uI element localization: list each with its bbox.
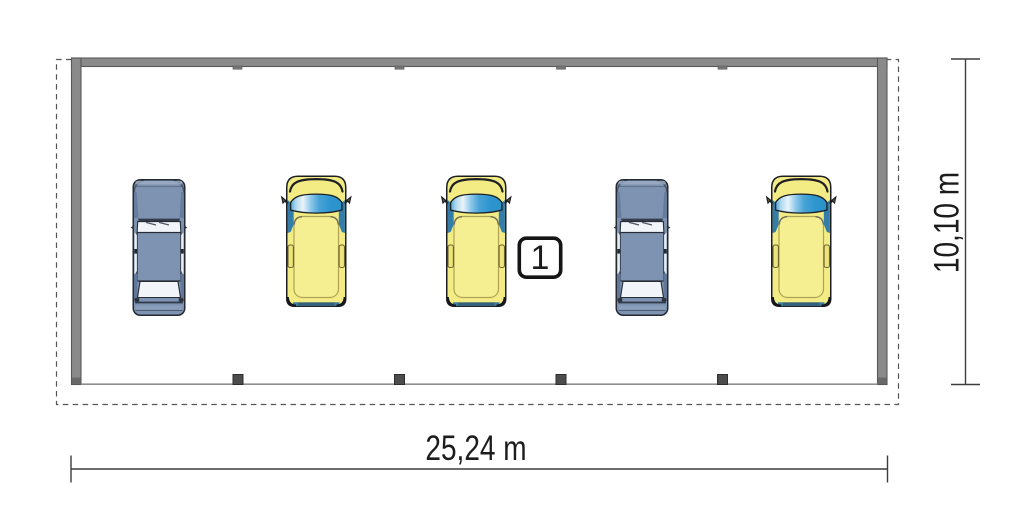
svg-text:1: 1 bbox=[531, 239, 550, 277]
svg-text:25,24 m: 25,24 m bbox=[425, 428, 526, 468]
svg-text:10,10 m: 10,10 m bbox=[926, 172, 966, 273]
